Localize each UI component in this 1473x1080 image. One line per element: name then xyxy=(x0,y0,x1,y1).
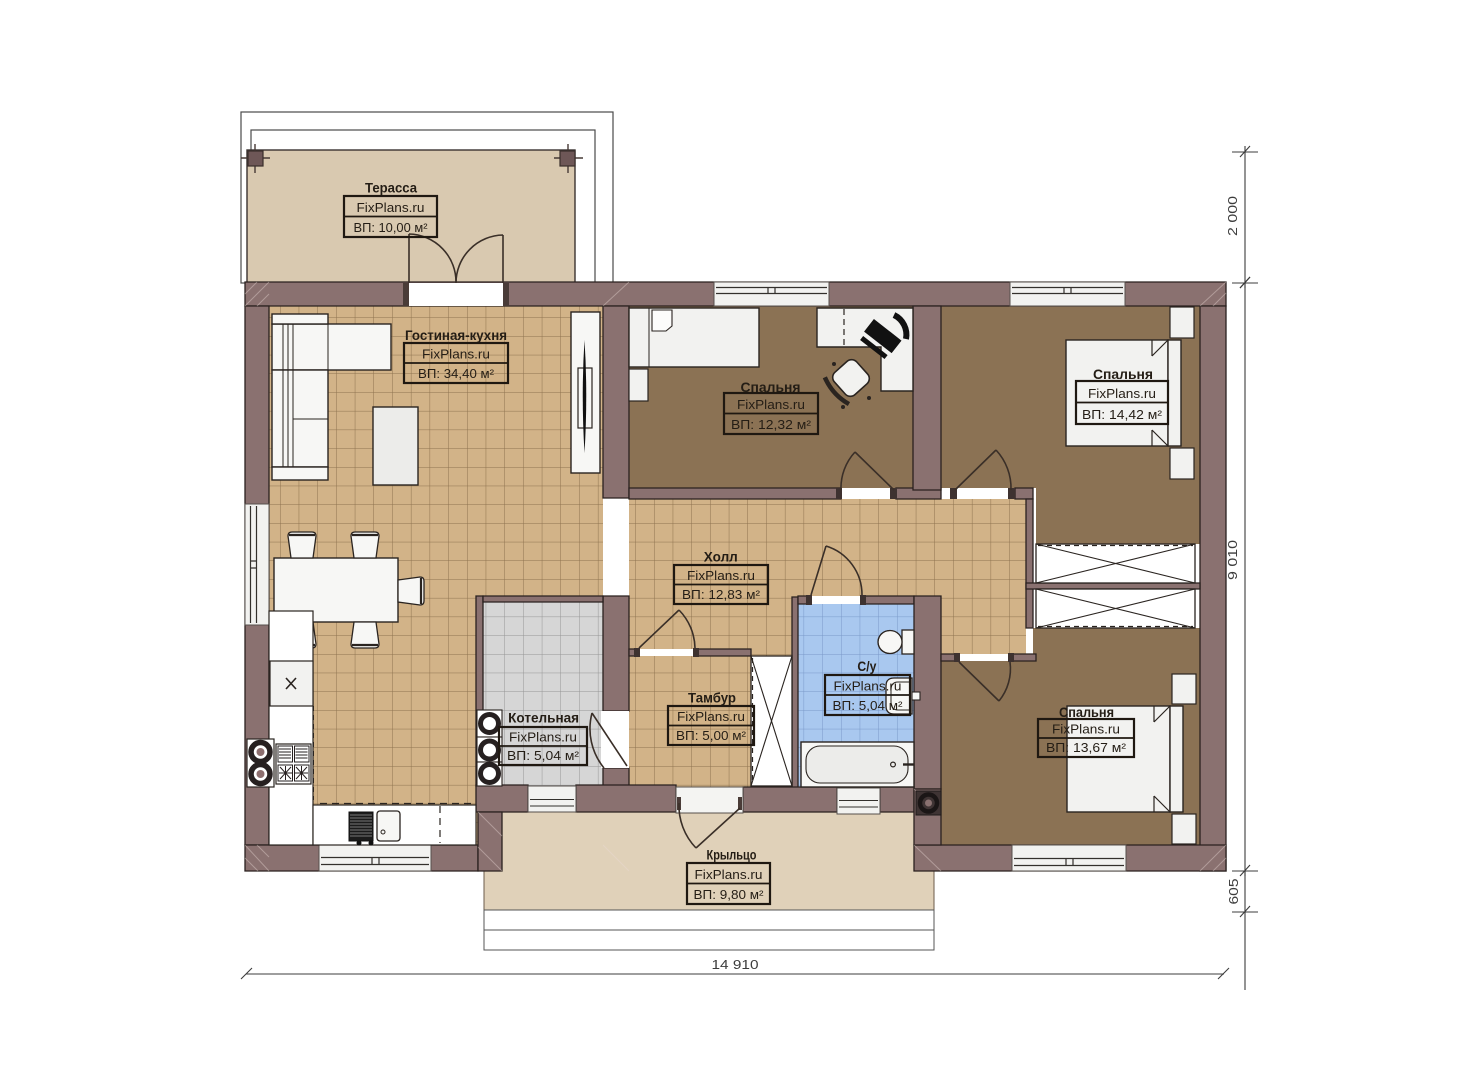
svg-text:Холл: Холл xyxy=(704,549,738,565)
svg-text:605: 605 xyxy=(1226,879,1241,905)
svg-text:ВП: 12,83 м²: ВП: 12,83 м² xyxy=(682,587,761,602)
svg-text:С/у: С/у xyxy=(857,658,876,674)
svg-text:FixPlans.ru: FixPlans.ru xyxy=(695,867,763,882)
svg-text:Крыльцо: Крыльцо xyxy=(707,847,757,863)
svg-text:ВП: 9,80 м²: ВП: 9,80 м² xyxy=(694,887,765,902)
svg-text:Спальня: Спальня xyxy=(1093,366,1153,382)
svg-text:ВП: 5,00 м²: ВП: 5,00 м² xyxy=(676,728,747,743)
svg-text:FixPlans.ru: FixPlans.ru xyxy=(1052,722,1120,737)
svg-text:FixPlans.ru: FixPlans.ru xyxy=(687,568,755,583)
svg-text:ВП: 10,00 м²: ВП: 10,00 м² xyxy=(354,220,429,235)
svg-text:2 000: 2 000 xyxy=(1225,196,1240,236)
svg-text:ВП: 12,32 м²: ВП: 12,32 м² xyxy=(731,417,812,432)
svg-text:FixPlans.ru: FixPlans.ru xyxy=(509,730,577,745)
svg-text:FixPlans.ru: FixPlans.ru xyxy=(1088,386,1156,401)
svg-text:FixPlans.ru: FixPlans.ru xyxy=(737,397,805,412)
svg-text:FixPlans.ru: FixPlans.ru xyxy=(422,347,490,362)
svg-text:FixPlans.ru: FixPlans.ru xyxy=(677,709,745,724)
svg-text:ВП: 34,40 м²: ВП: 34,40 м² xyxy=(418,366,495,381)
svg-text:Котельная: Котельная xyxy=(508,710,579,726)
svg-text:FixPlans.ru: FixPlans.ru xyxy=(357,200,425,215)
svg-text:Тамбур: Тамбур xyxy=(688,690,736,706)
svg-text:ВП: 14,42 м²: ВП: 14,42 м² xyxy=(1082,407,1163,422)
svg-text:ВП: 13,67 м²: ВП: 13,67 м² xyxy=(1046,740,1127,755)
svg-text:14 910: 14 910 xyxy=(712,957,759,972)
svg-text:ВП: 5,04 м²: ВП: 5,04 м² xyxy=(507,748,580,763)
svg-text:ВП: 5,04 м²: ВП: 5,04 м² xyxy=(833,698,904,713)
svg-text:FixPlans.ru: FixPlans.ru xyxy=(834,679,902,694)
svg-text:Спальня: Спальня xyxy=(1059,704,1114,720)
svg-text:Терасса: Терасса xyxy=(365,180,417,196)
svg-text:Гостиная-кухня: Гостиная-кухня xyxy=(405,327,507,343)
svg-text:9 010: 9 010 xyxy=(1225,540,1240,580)
